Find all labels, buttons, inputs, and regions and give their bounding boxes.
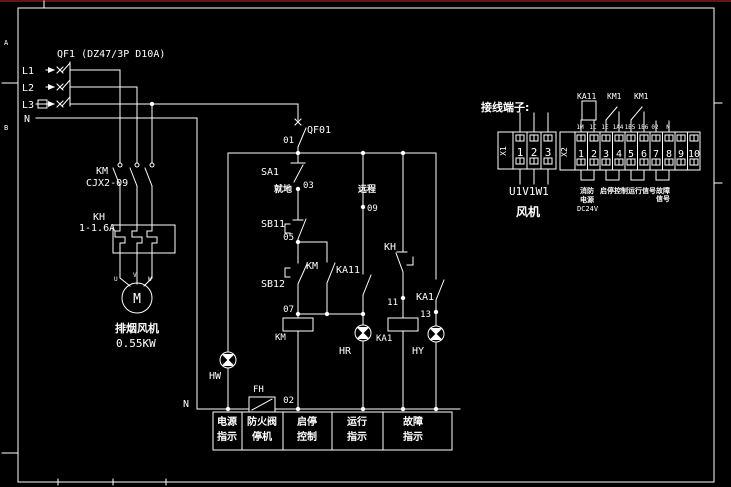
ka1-coil-symbol <box>388 318 418 409</box>
schematic-drawing: A B QF1 (DZ47/3P D10A) L1 L2 L3 N KM CJX… <box>0 0 731 487</box>
hr-lamp-icon <box>355 325 371 341</box>
caption-g1-line1: 消防 <box>580 186 594 195</box>
x2-num: 7 <box>653 149 659 160</box>
node-label-11: 11 <box>387 298 398 308</box>
label-kh-aux: KH <box>384 242 396 253</box>
label-sa1: SA1 <box>261 167 279 178</box>
label-km1-device: KM1 <box>607 92 622 101</box>
wire-tag: 02 <box>651 124 659 131</box>
wire-tag: 1B6 <box>638 124 649 131</box>
x1-caption: 风机 <box>516 204 540 219</box>
qf1-breaker-symbol <box>36 62 298 108</box>
caption-g1-line3: DC24V <box>577 205 599 213</box>
x1-num: 1 <box>517 146 524 159</box>
label-n: N <box>24 114 30 125</box>
label-hr: HR <box>339 346 352 357</box>
hy-lamp-icon <box>428 326 444 342</box>
legend-cell-running: 运行 指示 <box>347 415 367 443</box>
node-label-02: 02 <box>283 396 294 406</box>
x2-num: 5 <box>628 149 634 160</box>
x1-terminal-block: X1 1 2 3 <box>498 113 556 184</box>
label-kh-main: KH <box>93 212 105 223</box>
caption-g4-line2: 信号 <box>656 194 670 203</box>
x2-pair-connectors <box>581 170 669 180</box>
node-label-13: 13 <box>420 310 431 320</box>
fh-damper-symbol <box>197 397 460 412</box>
x2-num: 3 <box>603 149 609 160</box>
legend-text: 指示 <box>217 430 237 443</box>
cad-canvas: A B QF1 (DZ47/3P D10A) L1 L2 L3 N KM CJX… <box>0 0 731 487</box>
node-label-09: 09 <box>367 204 378 214</box>
label-km1-device-2: KM1 <box>634 92 649 101</box>
node-label-05: 05 <box>283 233 294 243</box>
zone-letter-a: A <box>4 39 9 47</box>
label-sb12: SB12 <box>261 279 285 290</box>
wire-tag: 1C <box>589 124 597 131</box>
wire-tag: 1B5 <box>625 124 636 131</box>
label-fh: FH <box>253 385 264 395</box>
label-l2: L2 <box>22 83 34 94</box>
legend-text: 故障 <box>403 415 423 428</box>
label-l1: L1 <box>22 66 34 77</box>
legend-text: 指示 <box>403 430 423 443</box>
caption-g3: 运行信号 <box>628 186 656 195</box>
label-l3: L3 <box>22 100 34 111</box>
terminal-section: 接线端子: X1 1 2 3 U1V1W1 风机 X2 1 2 3 4 5 <box>481 92 700 219</box>
label-sa1-local: 就地 <box>274 183 292 195</box>
label-qf01: QF01 <box>307 125 331 136</box>
x1-label: X1 <box>499 146 508 156</box>
terminals-title: 接线端子: <box>481 100 529 114</box>
legend-text: 电源 <box>217 415 237 428</box>
legend-text: 启停 <box>297 415 317 428</box>
legend-cell-startstop: 启停 控制 <box>297 415 317 443</box>
zone-letter-b: B <box>4 124 8 132</box>
x2-num: 1 <box>578 149 584 160</box>
hw-lamp-branch <box>220 153 236 409</box>
caption-g2: 启停控制 <box>600 186 628 195</box>
node-label-01: 01 <box>283 136 294 146</box>
ka1-contact-branch <box>428 153 444 409</box>
x2-num: 2 <box>591 149 597 160</box>
legend-cell-damper: 防火阀 停机 <box>247 415 277 443</box>
label-ka11-aux: KA11 <box>336 265 360 276</box>
x2-num: 8 <box>666 149 672 160</box>
legend-table: 电源 指示 防火阀 停机 启停 控制 运行 指示 故障 指示 <box>213 412 452 450</box>
label-ka11-device: KA11 <box>577 92 596 101</box>
label-motor-power: 0.55KW <box>116 337 156 350</box>
label-terminal-u: U <box>114 276 118 283</box>
qf01-breaker-symbol <box>295 104 306 153</box>
label-km-aux: KM <box>306 261 318 272</box>
x1-num: 2 <box>531 146 538 159</box>
wire-tag: 1A4 <box>613 124 624 131</box>
wire-tag: 1M <box>576 124 584 131</box>
ka11-coil-icon <box>582 101 596 120</box>
caption-g4-line1: 故障 <box>656 186 670 195</box>
node-label-03: 03 <box>303 181 314 191</box>
label-hw: HW <box>209 371 222 382</box>
hw-lamp-icon <box>220 352 236 368</box>
x2-label: X2 <box>560 147 569 157</box>
label-motor-m: M <box>133 292 141 307</box>
label-sb11: SB11 <box>261 219 285 230</box>
ka11-contact-branch <box>363 153 371 314</box>
legend-text: 运行 <box>347 415 367 428</box>
legend-text: 防火阀 <box>247 415 277 428</box>
label-sa1-remote: 远程 <box>358 183 376 195</box>
x2-num: 4 <box>616 149 622 160</box>
label-ka1-coil: KA1 <box>376 334 392 344</box>
window-top-edge <box>0 0 731 2</box>
sa1-selector-symbol <box>291 153 305 182</box>
sb12-button-symbol <box>285 242 307 314</box>
label-ka1-aux: KA1 <box>416 292 434 303</box>
legend-text: 停机 <box>252 430 272 443</box>
x1-wire-labels: U1V1W1 <box>509 185 549 198</box>
x2-num: 9 <box>678 149 684 160</box>
label-hy: HY <box>412 346 424 357</box>
x2-num: 10 <box>688 149 700 160</box>
label-terminal-w: W <box>148 276 152 283</box>
label-km-model: CJX2-09 <box>86 178 128 189</box>
caption-g1-line2: 电源 <box>580 195 594 204</box>
legend-cell-fault: 故障 指示 <box>403 415 423 443</box>
label-n-bus: N <box>183 399 189 410</box>
label-km-coil: KM <box>275 333 286 343</box>
legend-text: 控制 <box>297 430 317 443</box>
label-motor-name: 排烟风机 <box>115 321 159 335</box>
kh-overload-symbol <box>113 225 175 253</box>
power-circuit: QF1 (DZ47/3P D10A) L1 L2 L3 N KM CJX2-09 <box>22 49 298 409</box>
wire-tag: N <box>666 124 670 131</box>
label-km-main: KM <box>96 166 108 177</box>
km-coil-symbol <box>283 314 313 409</box>
label-qf1: QF1 (DZ47/3P D10A) <box>57 49 165 60</box>
wire-tag: 1E <box>601 124 609 131</box>
x1-num: 3 <box>545 146 552 159</box>
kh-aux-contact-symbol <box>396 153 413 318</box>
label-terminal-v: V <box>133 272 137 279</box>
legend-text: 指示 <box>347 430 367 443</box>
hr-lamp-branch <box>355 314 371 409</box>
km-main-contacts <box>113 163 154 225</box>
node-label-07: 07 <box>283 305 294 315</box>
x2-terminal-block: X2 1 2 3 4 5 6 7 8 9 10 <box>560 132 700 170</box>
x2-group-captions: 消防 电源 DC24V 启停控制 运行信号 故障 信号 <box>577 186 670 213</box>
legend-cell-power: 电源 指示 <box>217 415 237 443</box>
km-aux-contact-symbol <box>298 242 335 314</box>
x2-num: 6 <box>641 149 647 160</box>
control-circuit: QF01 01 HW SA1 就地 03 SB11 05 SB12 <box>183 104 460 412</box>
label-kh-range: 1-1.6A <box>79 223 115 234</box>
